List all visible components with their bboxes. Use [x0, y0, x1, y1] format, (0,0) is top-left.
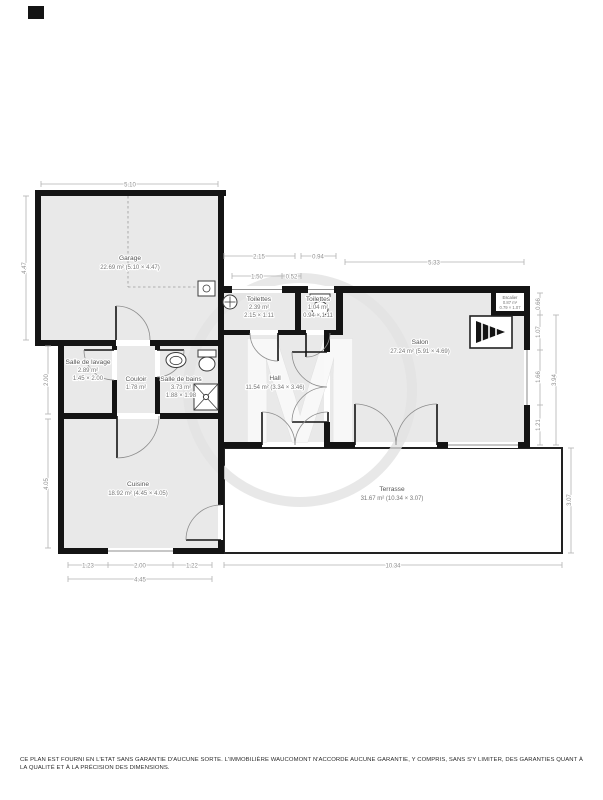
svg-text:4.47: 4.47 — [22, 262, 28, 274]
toilet-icon-bains — [198, 350, 216, 371]
plan-fragment — [28, 6, 44, 19]
svg-text:2.15: 2.15 — [253, 255, 265, 261]
sink-icon-bains — [166, 353, 186, 368]
svg-text:Salon: Salon — [412, 339, 429, 346]
svg-text:4.05: 4.05 — [44, 478, 50, 490]
svg-text:5.10: 5.10 — [124, 183, 136, 189]
svg-text:0.79 × 1.07: 0.79 × 1.07 — [499, 305, 521, 310]
svg-text:1.78 m²: 1.78 m² — [126, 385, 146, 391]
svg-text:1.45 × 2.00: 1.45 × 2.00 — [73, 376, 104, 382]
window-toilettes — [232, 286, 282, 293]
svg-text:2.39 m²: 2.39 m² — [249, 305, 269, 311]
floor-plan-svg: M — [0, 0, 603, 800]
dim-lavage-height: 2.00 — [44, 346, 51, 414]
window-salon-bottom — [448, 442, 518, 448]
svg-text:2.89 m²: 2.89 m² — [78, 368, 98, 374]
svg-text:3.07: 3.07 — [567, 494, 573, 506]
window-toilettes-2 — [308, 286, 334, 293]
svg-text:1.66: 1.66 — [536, 371, 542, 383]
svg-text:Salle de bains: Salle de bains — [160, 376, 202, 383]
svg-text:Salle de lavage: Salle de lavage — [65, 359, 110, 366]
window-cuisine — [108, 548, 173, 554]
dim-bottom-total: 4.45 — [68, 576, 212, 584]
svg-text:0.52: 0.52 — [286, 275, 298, 281]
svg-text:18.92 m² (4.45 × 4.05): 18.92 m² (4.45 × 4.05) — [108, 491, 168, 497]
svg-text:5.33: 5.33 — [428, 261, 440, 267]
svg-text:Toilettes: Toilettes — [306, 296, 331, 303]
dim-terrasse-width: 10.34 — [224, 562, 562, 570]
shower-icon — [194, 384, 218, 410]
dim-salon-width: 5.33 — [345, 259, 524, 267]
svg-text:1.50: 1.50 — [251, 275, 263, 281]
dim-garage-width: 5.10 — [41, 181, 218, 189]
dim-garage-height: 4.47 — [22, 196, 29, 340]
stairs-icon — [470, 316, 512, 348]
floor-plan-page: M — [0, 0, 603, 800]
dim-right-total: 3.94 — [552, 315, 559, 445]
svg-text:0.94: 0.94 — [312, 255, 324, 261]
svg-text:1.04 m²: 1.04 m² — [308, 305, 328, 311]
dim-bottom-segments: 1.23 2.00 1.22 — [68, 562, 212, 570]
svg-text:2.00: 2.00 — [134, 564, 146, 570]
svg-text:2.15 × 1.11: 2.15 × 1.11 — [244, 313, 274, 319]
svg-text:Garage: Garage — [119, 255, 141, 262]
svg-text:Cuisine: Cuisine — [127, 481, 149, 488]
svg-text:Toilettes: Toilettes — [247, 296, 272, 303]
svg-text:4.45: 4.45 — [134, 578, 146, 584]
water-heater-icon — [198, 281, 215, 296]
round-sink-icon — [223, 295, 237, 309]
svg-text:Hall: Hall — [269, 375, 281, 382]
svg-text:1.22: 1.22 — [186, 564, 198, 570]
svg-text:10.34: 10.34 — [385, 564, 401, 570]
dim-cuisine-height: 4.05 — [44, 419, 51, 548]
svg-text:31.67 m² (10.34 × 3.07): 31.67 m² (10.34 × 3.07) — [361, 496, 424, 502]
dim-right-chain: 0.66 1.07 1.66 1.21 — [536, 293, 543, 445]
svg-text:3.94: 3.94 — [552, 374, 558, 386]
window-salon-right — [524, 350, 530, 405]
svg-text:0.66: 0.66 — [536, 298, 542, 310]
svg-text:2.00: 2.00 — [44, 374, 50, 386]
svg-text:11.54 m² (3.34 × 3.46): 11.54 m² (3.34 × 3.46) — [245, 385, 304, 391]
svg-text:1.07: 1.07 — [536, 326, 542, 338]
svg-text:1.21: 1.21 — [536, 419, 542, 431]
svg-text:22.69 m² (5.10 × 4.47): 22.69 m² (5.10 × 4.47) — [100, 265, 160, 271]
svg-text:Couloir: Couloir — [126, 376, 148, 383]
dim-toilettes2-width: 0.94 — [301, 253, 336, 261]
svg-text:1.88 × 1.98: 1.88 × 1.98 — [166, 393, 197, 399]
svg-text:27.24 m² (5.91 × 4.69): 27.24 m² (5.91 × 4.69) — [390, 349, 450, 355]
svg-text:1.23: 1.23 — [82, 564, 94, 570]
dim-toilettes-width: 2.15 — [224, 253, 295, 261]
dim-terrasse-height: 3.07 — [567, 448, 574, 553]
svg-text:0.94 × 1.11: 0.94 × 1.11 — [303, 313, 333, 319]
svg-text:Terrasse: Terrasse — [379, 486, 405, 493]
svg-text:3.73 m²: 3.73 m² — [171, 385, 191, 391]
disclaimer-text: CE PLAN EST FOURNI EN L'ETAT SANS GARANT… — [20, 756, 588, 773]
